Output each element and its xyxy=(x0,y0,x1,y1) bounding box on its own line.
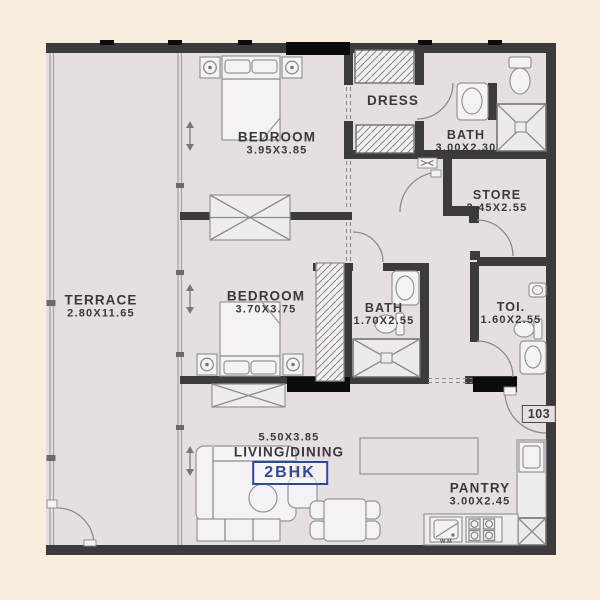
room-label-dress: DRESS xyxy=(367,94,419,108)
room-name: PANTRY xyxy=(450,482,511,496)
unit-number-plate: 103 xyxy=(522,405,556,423)
room-name: TERRACE xyxy=(65,294,138,308)
washbasin xyxy=(520,341,546,374)
service-shaft xyxy=(518,518,546,545)
small-sink xyxy=(529,283,546,297)
room-label-bedroom1: BEDROOM 3.95X3.85 xyxy=(238,131,316,158)
room-label-toilet: TOI. 1.60X2.55 xyxy=(481,301,542,327)
room-dims: 2.45X2.55 xyxy=(467,203,528,215)
room-label-living: 5.50X3.85 LIVING/DINING xyxy=(234,433,344,460)
room-name: BATH xyxy=(365,302,403,315)
toilet xyxy=(509,57,531,94)
room-label-store: STORE 2.45X2.55 xyxy=(467,189,528,215)
floorplan-canvas: W.M TERRACE 2.80X11.65 BEDROOM 3.95X3.85… xyxy=(0,0,600,600)
room-label-terrace: TERRACE 2.80X11.65 xyxy=(65,294,138,321)
room-dims: 3.70X3.75 xyxy=(236,305,297,317)
room-name: DRESS xyxy=(367,94,419,108)
room-label-bedroom2: BEDROOM 3.70X3.75 xyxy=(227,290,305,317)
wardrobe xyxy=(210,195,290,240)
room-dims: 1.70X2.55 xyxy=(354,316,415,328)
shower xyxy=(353,339,420,377)
room-label-bath2: BATH 1.70X2.55 xyxy=(354,302,415,328)
kitchen-island xyxy=(360,438,478,474)
room-dims: 1.60X2.55 xyxy=(481,315,542,327)
room-dims: 3.00X2.45 xyxy=(450,497,511,509)
washbasin xyxy=(457,83,488,120)
tv-unit xyxy=(212,384,285,407)
wardrobe xyxy=(316,263,344,381)
room-label-pantry: PANTRY 3.00X2.45 xyxy=(450,482,511,509)
room-label-bath1: BATH 3.00X2.30 xyxy=(436,129,497,155)
appliance-label: W.M xyxy=(440,539,452,545)
stove xyxy=(466,517,502,542)
unit-type-badge: 2BHK xyxy=(252,461,328,485)
room-name: BATH xyxy=(447,129,485,142)
dining-table xyxy=(324,499,366,541)
room-name: LIVING/DINING xyxy=(234,445,344,459)
room-name: BEDROOM xyxy=(238,131,316,145)
coffee-table xyxy=(249,484,277,512)
room-dims: 2.80X11.65 xyxy=(67,309,135,321)
washbasin xyxy=(392,271,419,305)
room-dims: 3.00X2.30 xyxy=(436,143,497,155)
shower xyxy=(497,104,546,151)
room-name: STORE xyxy=(473,189,521,202)
room-name: TOI. xyxy=(497,301,525,314)
room-dims: 3.95X3.85 xyxy=(247,146,308,158)
room-name: BEDROOM xyxy=(227,290,305,304)
room-dims: 5.50X3.85 xyxy=(259,433,320,445)
vent-symbol xyxy=(418,158,437,168)
